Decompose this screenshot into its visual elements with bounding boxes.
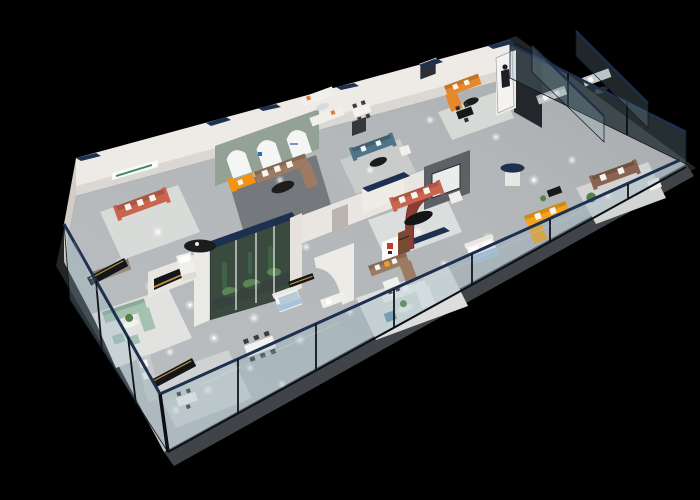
standee-figure-head — [502, 64, 507, 69]
arch-poster-mark — [290, 143, 298, 145]
logo-red-mark — [387, 243, 393, 249]
arch-poster-mark — [258, 152, 262, 156]
logo-dark-mark — [388, 251, 392, 254]
showroom-render — [0, 0, 700, 500]
oval-coffee-table — [184, 240, 216, 253]
showroom-scene — [0, 0, 700, 500]
standee-figure-body — [501, 69, 510, 88]
terrarium-left-pillar — [194, 246, 210, 327]
navy-pedestal-table — [501, 163, 525, 172]
table-decor — [195, 242, 199, 246]
